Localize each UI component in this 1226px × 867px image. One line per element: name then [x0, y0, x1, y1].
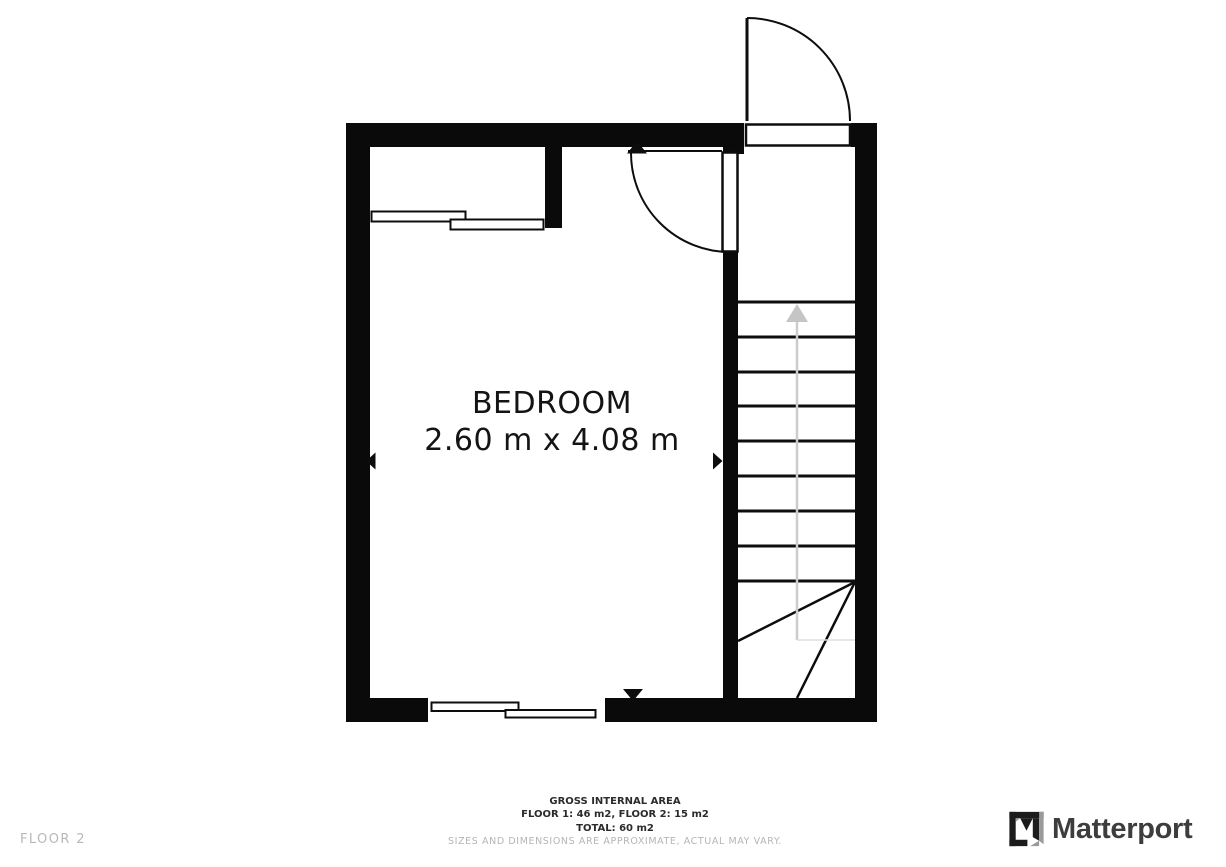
stair-arrow-head [786, 304, 808, 322]
bottom-window [432, 703, 596, 718]
bedroom-door-leaf [723, 153, 738, 252]
floorplan-page: BEDROOM 2.60 m x 4.08 m GROSS INTERNAL A… [0, 0, 1226, 867]
entry-door-threshold [746, 125, 850, 146]
room-dimensions: 2.60 m x 4.08 m [352, 422, 752, 459]
area-total: TOTAL: 60 m2 [315, 822, 915, 835]
closet-door-panel-right [451, 220, 544, 230]
stair-direction-arrow [786, 304, 855, 640]
area-summary: GROSS INTERNAL AREA FLOOR 1: 46 m2, FLOO… [315, 795, 915, 849]
room-name: BEDROOM [352, 385, 752, 422]
floor-breakdown: FLOOR 1: 46 m2, FLOOR 2: 15 m2 [315, 808, 915, 821]
entry-door [746, 18, 850, 146]
wall-closet-stub [545, 147, 562, 228]
matterport-icon [1008, 811, 1045, 847]
closet-sliding-doors [372, 212, 544, 230]
entry-door-arc [747, 18, 850, 121]
bedroom-door-arc [631, 153, 730, 252]
room-label: BEDROOM 2.60 m x 4.08 m [352, 385, 752, 459]
staircase [738, 302, 855, 698]
window-sash-right [506, 710, 596, 718]
floor-indicator: FLOOR 2 [20, 832, 86, 847]
matterport-logo: Matterport [1008, 809, 1192, 849]
bedroom-door [628, 151, 738, 252]
wall-top-left [346, 123, 744, 147]
wall-stair-partition [723, 252, 738, 698]
wall-bottom-right [605, 698, 877, 722]
matterport-wordmark: Matterport [1052, 811, 1192, 847]
wall-right [855, 123, 877, 722]
gross-internal-area-title: GROSS INTERNAL AREA [315, 795, 915, 808]
size-disclaimer: SIZES AND DIMENSIONS ARE APPROXIMATE, AC… [315, 835, 915, 849]
wall-bottom-left [346, 698, 428, 722]
